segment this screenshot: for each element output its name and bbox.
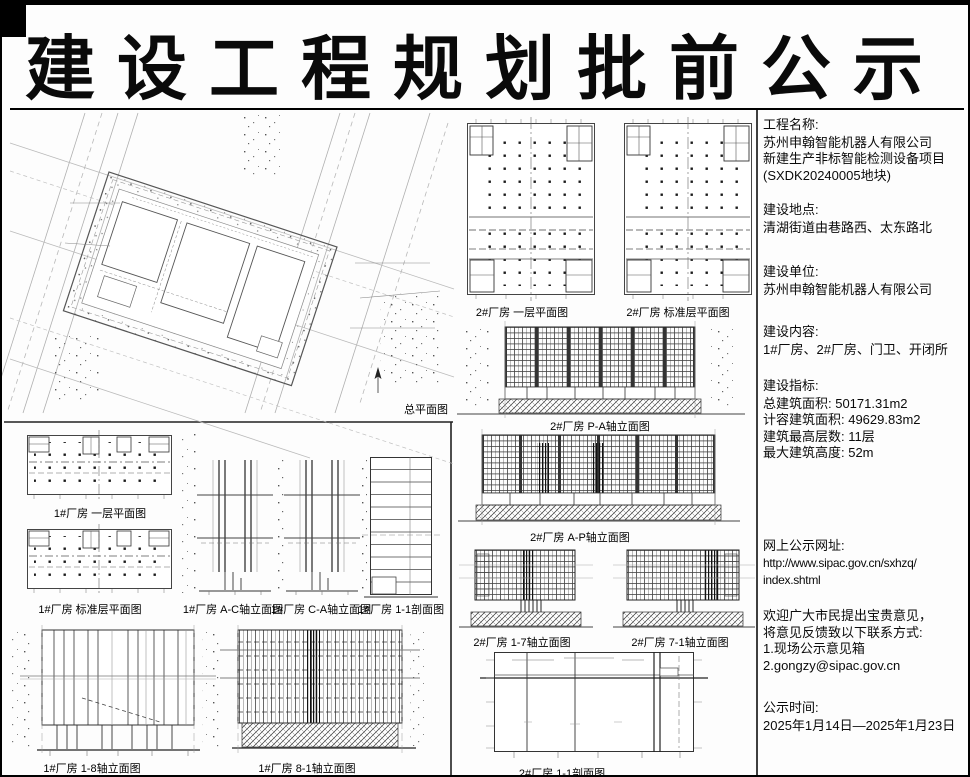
feedback-option-box: 1.现场公示意见箱 <box>763 641 966 658</box>
info-section-feedback: 欢迎广大市民提出宝贵意见， 将意见反馈致以下联系方式: 1.现场公示意见箱 2.… <box>763 608 966 674</box>
plan-2f-first-floor <box>468 117 595 301</box>
label-elev1-ac: 1#厂房 A-C轴立面图 <box>183 601 283 617</box>
elev-1f-ac <box>197 460 273 595</box>
project-name-line: (SXDK20240005地块) <box>763 168 966 185</box>
elev-1f-81 <box>220 625 430 753</box>
builder-heading: 建设单位: <box>763 264 966 281</box>
content-line: 1#厂房、2#厂房、门卫、开闭所 <box>763 342 966 359</box>
label-sect2-11: 2#厂房 1-1剖面图 <box>519 765 605 777</box>
label-elev2-17: 2#厂房 1-7轴立面图 <box>473 634 570 650</box>
site-plan-drawing <box>2 113 454 464</box>
sect-2f-11 <box>480 652 708 758</box>
info-panel: 工程名称: 苏州申翰智能机器人有限公司 新建生产非标智能检测设备项目 (SXDK… <box>763 117 966 734</box>
info-section-location: 建设地点: 清湖街道由巷路西、太东路北 <box>763 202 966 236</box>
indicator-max-height: 最大建筑高度: 52m <box>763 445 966 462</box>
elev-2f-17 <box>459 550 593 627</box>
info-section-website: 网上公示网址: http://www.sipac.gov.cn/sxhzq/ i… <box>763 538 966 589</box>
builder-line: 苏州申翰智能机器人有限公司 <box>763 282 966 299</box>
label-plan1-first: 1#厂房 一层平面图 <box>54 505 146 521</box>
plan-1f-standard-floor <box>28 524 172 594</box>
location-line: 清湖街道由巷路西、太东路北 <box>763 220 966 237</box>
label-elev2-71: 2#厂房 7-1轴立面图 <box>631 634 728 650</box>
label-elev1-18: 1#厂房 1-8轴立面图 <box>43 760 140 776</box>
notice-page: 建设工程规划批前公示 <box>0 0 970 777</box>
elev-2f-ap <box>458 429 740 525</box>
elev-1f-18 <box>10 625 220 756</box>
label-plan2-first: 2#厂房 一层平面图 <box>476 304 568 320</box>
content-heading: 建设内容: <box>763 324 966 341</box>
indicator-total-area: 总建筑面积: 50171.31m2 <box>763 396 966 413</box>
project-name-line: 苏州申翰智能机器人有限公司 <box>763 135 966 152</box>
info-section-project-name: 工程名称: 苏州申翰智能机器人有限公司 新建生产非标智能检测设备项目 (SXDK… <box>763 117 966 184</box>
period-dates: 2025年1月14日—2025年1月23日 <box>763 718 966 735</box>
location-heading: 建设地点: <box>763 202 966 219</box>
label-elev1-81: 1#厂房 8-1轴立面图 <box>258 760 355 776</box>
feedback-line: 欢迎广大市民提出宝贵意见， <box>763 608 966 625</box>
plan-2f-standard-floor <box>625 117 752 301</box>
period-heading: 公示时间: <box>763 700 966 717</box>
label-plan1-standard: 1#厂房 标准层平面图 <box>38 601 141 617</box>
label-plan2-standard: 2#厂房 标准层平面图 <box>626 304 729 320</box>
label-site-plan: 总平面图 <box>404 401 448 417</box>
website-url-2: index.shtml <box>763 572 966 589</box>
project-name-line: 新建生产非标智能检测设备项目 <box>763 151 966 168</box>
label-elev2-pa: 2#厂房 P-A轴立面图 <box>550 418 650 434</box>
elev-2f-pa <box>457 321 745 418</box>
website-heading: 网上公示网址: <box>763 538 966 555</box>
indicator-far-area: 计容建筑面积: 49629.83m2 <box>763 412 966 429</box>
label-sect1-11: 1#厂房 1-1剖面图 <box>358 601 444 617</box>
plan-1f-first-floor <box>28 430 172 500</box>
website-url: http://www.sipac.gov.cn/sxhzq/ <box>763 555 966 572</box>
feedback-line: 将意见反馈致以下联系方式: <box>763 625 966 642</box>
info-section-period: 公示时间: 2025年1月14日—2025年1月23日 <box>763 700 966 734</box>
info-section-content: 建设内容: 1#厂房、2#厂房、门卫、开闭所 <box>763 324 966 358</box>
elev-2f-71 <box>613 550 755 627</box>
label-elev2-ap: 2#厂房 A-P轴立面图 <box>530 529 630 545</box>
sect-1f-11 <box>362 457 440 597</box>
indicator-max-floors: 建筑最高层数: 11层 <box>763 429 966 446</box>
label-elev1-ca: 1#厂房 C-A轴立面图 <box>271 601 371 617</box>
indicators-heading: 建设指标: <box>763 378 966 395</box>
info-section-builder: 建设单位: 苏州申翰智能机器人有限公司 <box>763 264 966 298</box>
elev-1f-ca <box>284 460 360 595</box>
info-section-indicators: 建设指标: 总建筑面积: 50171.31m2 计容建筑面积: 49629.83… <box>763 378 966 462</box>
feedback-option-email: 2.gongzy@sipac.gov.cn <box>763 658 966 675</box>
project-name-heading: 工程名称: <box>763 117 966 134</box>
